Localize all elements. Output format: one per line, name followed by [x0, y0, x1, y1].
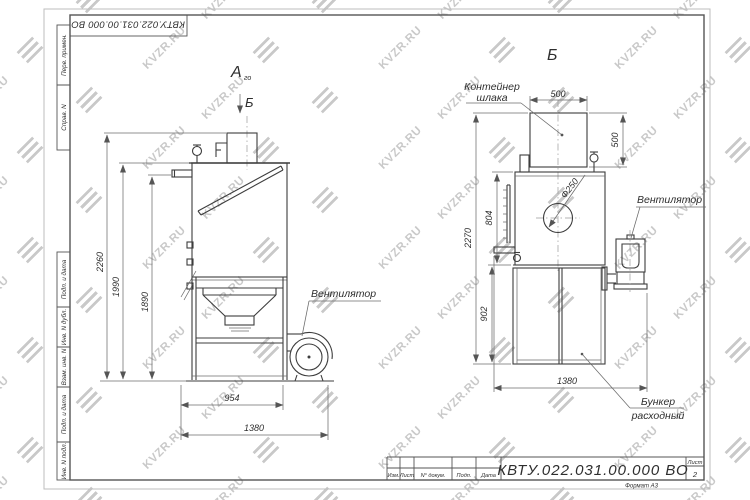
front-section-label: Б — [245, 95, 254, 110]
front-dimensions: 2260 1990 1890 954 1380 — [95, 133, 328, 440]
tb-col-podp: Подп. — [457, 473, 472, 479]
drawing-canvas: КВТУ.022.031.00.000 ВО Перв. примен. Спр… — [0, 0, 750, 500]
tb-sheet-label: Лист — [687, 460, 703, 466]
side-chimney-stub — [520, 155, 529, 172]
front-hopper — [196, 288, 283, 331]
front-chute — [198, 166, 281, 211]
dim-1990: 1990 — [111, 277, 121, 297]
side-valve — [590, 154, 598, 162]
sheet-frame — [44, 9, 710, 489]
dim-500h: 500 — [610, 132, 620, 147]
dim-902: 902 — [479, 306, 489, 321]
title-block: Изм. Лист N° докум. Подп. Дата КВТУ.022.… — [387, 457, 704, 490]
front-view-label: А — [230, 64, 242, 81]
front-structure — [100, 133, 334, 381]
side-fan — [602, 230, 647, 292]
front-gauge — [193, 147, 202, 156]
tb-col-dokum: N° докум. — [421, 473, 446, 479]
margin-label-6: Подп. и дата — [60, 394, 68, 434]
dim-1380-side: 1380 — [557, 376, 577, 386]
side-dimensions: 2270 804 902 1380 — [463, 113, 647, 392]
top-left-stamp: КВТУ.022.031.00.000 ВО — [70, 15, 187, 36]
margin-label-1: Перв. примен. — [61, 34, 68, 76]
dim-diameter: Ф250 — [559, 176, 581, 200]
margin-label-2: Справ. N — [61, 104, 68, 131]
tb-format-label: Формат А3 — [625, 484, 658, 490]
dim-804: 804 — [484, 210, 494, 225]
side-view-label: Б — [547, 47, 557, 64]
side-fan-label: Вентилятор — [637, 194, 702, 206]
drawing-sheet: KVZR.RUKVZR.RUKVZR.RUKVZR.RUKVZR.RUKVZR.… — [0, 0, 750, 500]
tb-designation: КВТУ.022.031.00.000 ВО — [497, 462, 688, 479]
dim-2270: 2270 — [463, 228, 473, 249]
inner-frame — [70, 15, 704, 480]
tb-col-data: Дата — [480, 473, 496, 479]
tb-col-list: Лист — [399, 473, 415, 479]
container-label-2: шлака — [476, 92, 507, 104]
margin-label-7: Инв. N подл. — [60, 443, 68, 480]
front-view-label-sub: го — [244, 75, 251, 82]
dim-2260: 2260 — [95, 252, 105, 273]
side-cabinet — [513, 268, 605, 364]
front-fan — [287, 332, 332, 381]
dim-1890: 1890 — [140, 292, 150, 312]
side-view: Б Контейнер шлака 500 500 — [463, 47, 706, 422]
slag-container — [530, 113, 587, 167]
stamp-designation: КВТУ.022.031.00.000 ВО — [71, 19, 185, 30]
front-view: А го Б — [95, 64, 381, 440]
front-chimney — [227, 133, 257, 163]
margin-column: Перв. примен. Справ. N Подп. и дата Инв.… — [57, 25, 70, 480]
dim-954: 954 — [224, 393, 239, 403]
door-handle — [181, 271, 196, 297]
dim-500w: 500 — [550, 89, 565, 99]
side-ladder — [503, 185, 510, 243]
container-dimensions: 500 500 — [530, 89, 627, 167]
front-body — [192, 163, 287, 277]
hopper-label-1: Бункер — [641, 396, 675, 408]
front-fan-label: Вентилятор — [311, 288, 376, 300]
front-stand — [192, 277, 287, 380]
dim-1380-front: 1380 — [244, 423, 264, 433]
hopper-label-2: расходный — [631, 410, 685, 422]
margin-label-3: Подп. и дата — [60, 259, 68, 299]
side-body — [515, 172, 605, 265]
tb-sheet-number: 2 — [692, 470, 698, 479]
outer-border — [44, 9, 710, 489]
tb-col-izm: Изм. — [388, 473, 400, 479]
margin-label-5: Взам. инв. N — [61, 348, 68, 385]
margin-label-4: Инв. N дубл. — [60, 309, 68, 345]
